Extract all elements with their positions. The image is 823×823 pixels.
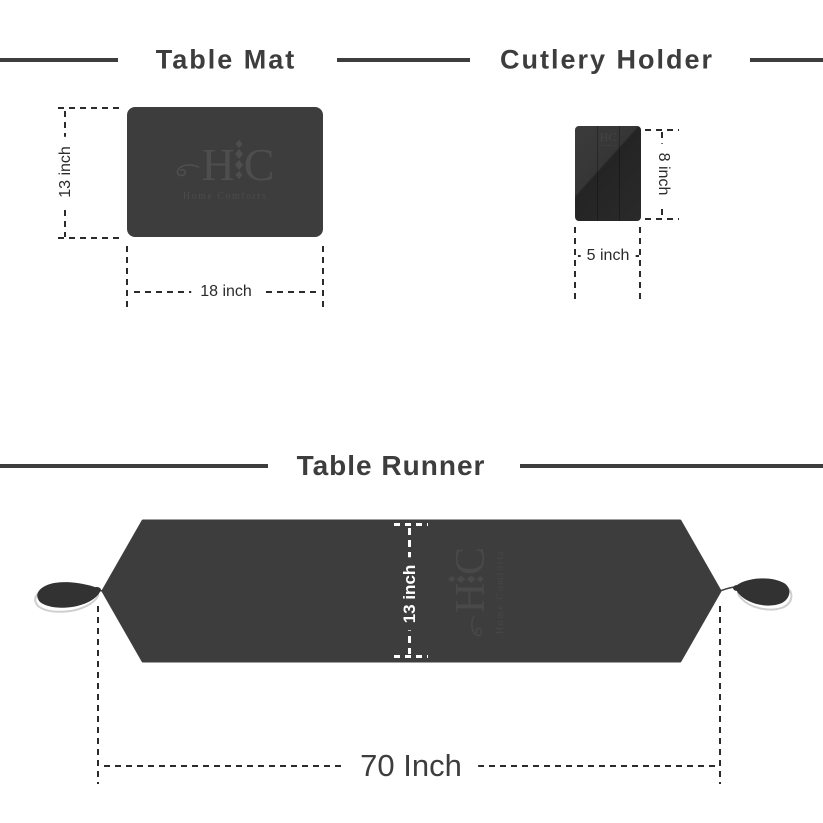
holder-height-extension-top (645, 129, 679, 131)
monogram-letter-h: H (202, 142, 235, 188)
flourish-icon (469, 615, 484, 637)
divider-line (750, 58, 823, 62)
cutlery-holder-shape: HC (575, 126, 641, 221)
runner-height-cap-top (394, 523, 428, 526)
monogram-letter-h: H (450, 583, 492, 613)
runner-width-extension-right (719, 606, 721, 784)
divider-line (0, 58, 118, 62)
brand-name: Home Comforts (183, 191, 267, 202)
brand-logo: H C Home Comforts (176, 142, 275, 202)
runner-height-label: 13 inch (400, 558, 420, 631)
mat-width-extension-left (126, 246, 128, 310)
mat-height-label: 13 inch (57, 137, 75, 207)
runner-width-extension-left (97, 606, 99, 784)
holder-height-extension-bottom (645, 218, 679, 220)
mat-width-extension-right (322, 246, 324, 310)
holder-width-extension-right (639, 227, 641, 300)
holder-height-label: 8 inch (654, 144, 672, 205)
runner-width-label: 70 Inch (344, 748, 478, 784)
runner-height-cap-bottom (394, 655, 428, 658)
monogram-letter-c: C (450, 547, 492, 575)
brand-logo: H C Home Comforts (450, 547, 506, 637)
table-runner-title: Table Runner (297, 450, 486, 482)
product-dimensions-diagram: Table Mat Cutlery Holder H C Home Comfor… (0, 0, 823, 823)
divider-line (0, 464, 268, 468)
divider-line (337, 58, 470, 62)
brand-logo-mini: HC (575, 131, 641, 146)
flourish-icon (176, 162, 200, 178)
mat-height-extension-bottom (58, 237, 124, 239)
mat-width-label: 18 inch (191, 283, 261, 301)
brand-name: Home Comforts (495, 550, 506, 634)
divider-line (520, 464, 823, 468)
table-mat-title: Table Mat (156, 45, 297, 76)
monogram: HC (600, 130, 617, 144)
monogram-letter-c: C (244, 142, 275, 188)
brand-underline (599, 145, 617, 146)
cutlery-holder-title: Cutlery Holder (500, 45, 714, 76)
mat-height-extension-top (58, 107, 124, 109)
holder-width-extension-left (574, 227, 576, 300)
table-mat-shape: H C Home Comforts (127, 107, 323, 237)
holder-width-label: 5 inch (581, 247, 636, 265)
